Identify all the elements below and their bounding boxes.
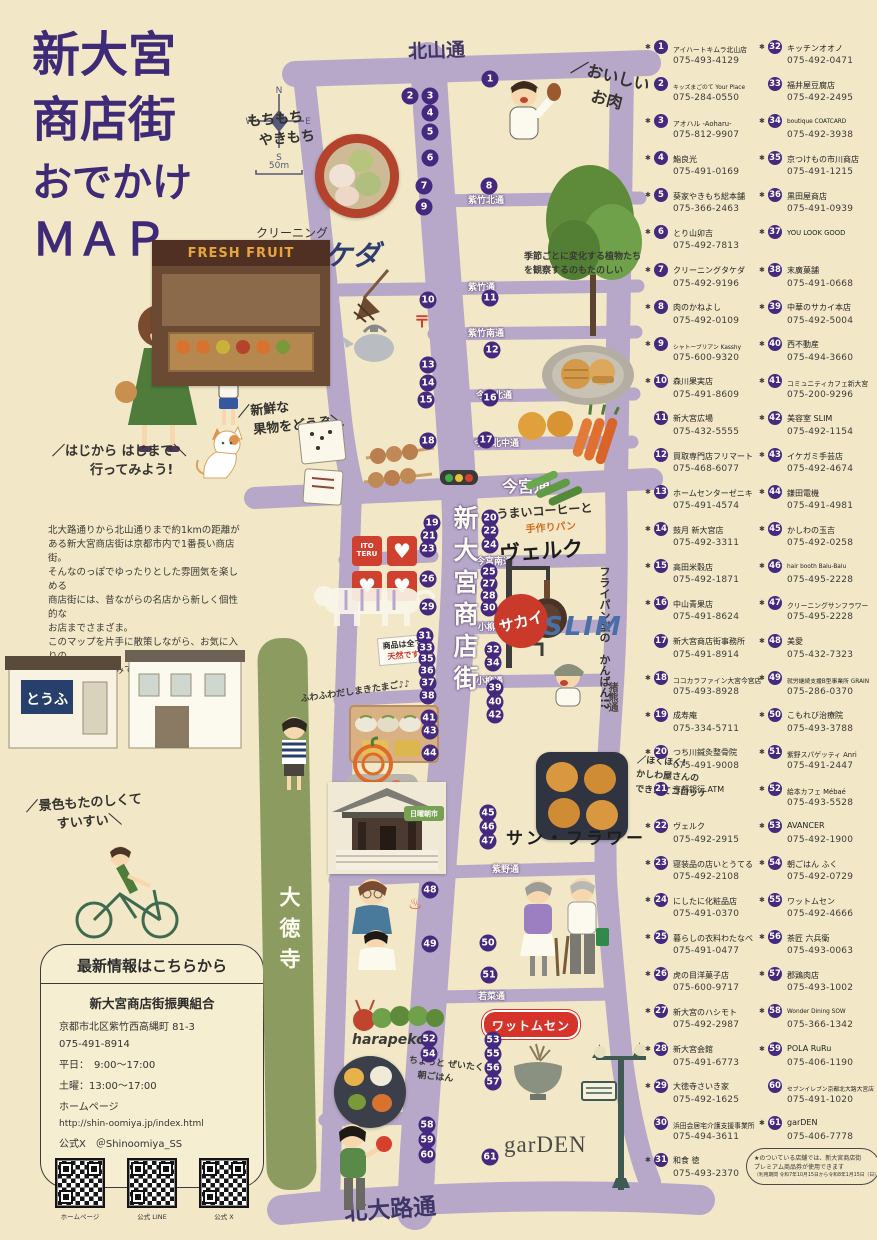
shop-phone: 075-492-4674 xyxy=(787,464,853,474)
map-marker-50: 50 xyxy=(480,935,497,952)
shop-number-badge: 44 xyxy=(768,485,782,499)
directory-entry: 33福井屋豆腐店075-492-2495 xyxy=(766,77,874,114)
premium-star-icon: ✱ xyxy=(759,1045,765,1053)
shop-number-badge: 21 xyxy=(654,782,668,796)
directory-entry: ✱9シャトーブリアン Kasshy075-600-9320 xyxy=(652,337,760,374)
map-marker-51: 51 xyxy=(481,967,498,984)
directory-entry: ✱1アイハートキムラ北山店075-493-4129 xyxy=(652,40,760,77)
tofu-shop-illustration: とうふ xyxy=(5,640,250,766)
map-marker-16: 16 xyxy=(482,390,499,407)
premium-star-icon: ✱ xyxy=(759,896,765,904)
map-marker-23: 23 xyxy=(420,541,437,558)
oniku-line2: お肉 xyxy=(589,86,625,112)
map-marker-1: 1 xyxy=(482,71,499,88)
premium-star-icon: ✱ xyxy=(645,711,651,719)
note-line3: （利用期間 令和7年10月15日から令和8年1月15日（日）） xyxy=(754,1172,872,1179)
shop-phone: 075-468-6077 xyxy=(673,464,739,474)
premium-star-icon: ✱ xyxy=(759,303,765,311)
premium-star-icon: ✱ xyxy=(645,859,651,867)
map-marker-60: 60 xyxy=(419,1147,436,1164)
premium-star-icon: ✱ xyxy=(645,599,651,607)
daitokuji-label: 大徳寺 xyxy=(274,886,304,979)
shop-name: 美容室 SLIM xyxy=(787,413,832,424)
directory-entry: ✱27新大宮のハシモト075-492-2987 xyxy=(652,1004,760,1041)
map-marker-7: 7 xyxy=(416,178,433,195)
shop-name: YOU LOOK GOOD xyxy=(787,229,845,237)
shop-number-badge: 16 xyxy=(654,596,668,610)
directory-entry: ✱15高田米穀店075-492-1871 xyxy=(652,559,760,596)
map-marker-8: 8 xyxy=(481,178,498,195)
shop-number-badge: 48 xyxy=(768,634,782,648)
sakai-text: サカイ xyxy=(497,605,546,636)
directory-entry: 17新大宮商店街事務所075-491-8914 xyxy=(652,634,760,671)
premium-star-icon: ✱ xyxy=(645,266,651,274)
directory-entry: 60セブンイレブン京都北大路大宮店075-491-1020 xyxy=(766,1079,874,1116)
premium-star-icon: ✱ xyxy=(645,303,651,311)
directory-entry: ✱32キッチンオオノ075-492-0471 xyxy=(766,40,874,77)
shop-phone: 075-491-0370 xyxy=(673,909,739,919)
shop-number-badge: 15 xyxy=(654,559,668,573)
shop-name: クリーニングサンフラワー xyxy=(787,600,868,610)
shop-name: 浜田会居宅介護支援事業所 xyxy=(673,1120,755,1130)
directory-entry: ✱47クリーニングサンフラワー075-495-2228 xyxy=(766,596,874,633)
shop-number-badge: 46 xyxy=(768,559,782,573)
mochi-callout: もちもち やきもち xyxy=(246,105,315,151)
shop-number-badge: 19 xyxy=(654,708,668,722)
shop-name: 西不動産 xyxy=(787,339,819,350)
directory-entry: ✱25暮らしの衣料わたなべ075-491-0477 xyxy=(652,930,760,967)
shop-number-badge: 34 xyxy=(768,114,782,128)
premium-star-icon: ✱ xyxy=(759,414,765,422)
title-line-3: おでかけ xyxy=(32,162,218,204)
svg-text:N: N xyxy=(276,86,283,96)
map-marker-3: 3 xyxy=(422,88,439,105)
directory-entry: ✱26虎の目洋菓子店075-600-9717 xyxy=(652,967,760,1004)
directory-entry: ✱19成寿庵075-334-5711 xyxy=(652,708,760,745)
directory-entry: ✱13ホームセンターゼニキ075-491-4574 xyxy=(652,485,760,522)
shop-name: 末廣菓舗 xyxy=(787,265,819,276)
shop-name: 絵本カフェ Mébaé xyxy=(787,786,846,796)
directory-entry: ✱54朝ごはん ふく075-492-0729 xyxy=(766,856,874,893)
shop-number-badge: 30 xyxy=(654,1116,668,1130)
map-marker-42: 42 xyxy=(487,707,504,724)
premium-star-icon: ✱ xyxy=(645,1007,651,1015)
shop-name: POLA RuRu xyxy=(787,1044,831,1053)
shop-number-badge: 27 xyxy=(654,1004,668,1018)
shop-name: 鎌田電機 xyxy=(787,488,819,499)
shop-phone: 075-284-0550 xyxy=(673,93,739,103)
premium-star-icon: ✱ xyxy=(759,785,765,793)
directory-entry: ✱56茶匠 六兵衛075-493-0063 xyxy=(766,930,874,967)
shop-phone: 075-492-1154 xyxy=(787,427,853,437)
map-marker-47: 47 xyxy=(480,833,497,850)
qr-line-icon xyxy=(127,1158,177,1208)
shop-number-badge: 5 xyxy=(654,188,668,202)
shop-name: 新大宮商店街事務所 xyxy=(673,636,745,647)
association-name: 新大宮商店街振興組合 xyxy=(41,993,263,1012)
shop-phone: 075-492-0109 xyxy=(673,316,739,326)
shop-number-badge: 18 xyxy=(654,671,668,685)
association-phone: 075-491-8914 xyxy=(59,1039,263,1050)
shop-name: AVANCER xyxy=(787,821,825,830)
premium-star-icon: ✱ xyxy=(759,191,765,199)
shop-number-badge: 47 xyxy=(768,596,782,610)
map-marker-44: 44 xyxy=(422,745,439,762)
premium-star-icon: ✱ xyxy=(759,228,765,236)
directory-entry: 30浜田会居宅介護支援事業所075-494-3611 xyxy=(652,1116,760,1153)
premium-star-icon: ✱ xyxy=(645,154,651,162)
qr-x-label: 公式 X xyxy=(199,1211,249,1221)
qr-homepage-icon xyxy=(55,1158,105,1208)
verk-callout: うまいコーヒーと 手作りパン ヴェルク xyxy=(496,499,596,569)
shop-phone: 075-492-1900 xyxy=(787,835,853,845)
directory-entry: ✱52絵本カフェ Mébaé075-493-5528 xyxy=(766,782,874,819)
shop-name: 中華のサカイ本店 xyxy=(787,302,851,313)
directory-entry: ✱18ココカラファイン大宮今宮店075-493-8928 xyxy=(652,671,760,708)
map-marker-29: 29 xyxy=(420,599,437,616)
broom-kettle-illustration xyxy=(336,268,412,368)
qr-homepage-label: ホームページ xyxy=(55,1211,105,1221)
temple-gate-photo xyxy=(328,782,446,874)
homepage-url: http://shin-oomiya.jp/index.html xyxy=(59,1119,263,1129)
premium-star-icon: ✱ xyxy=(759,1007,765,1015)
shop-name: 鼓月 新大宮店 xyxy=(673,525,724,536)
shop-number-badge: 35 xyxy=(768,151,782,165)
shop-phone: 075-492-2495 xyxy=(787,93,853,103)
directory-entry: ✱3アオハル -Aoharu-075-812-9907 xyxy=(652,114,760,151)
shop-number-badge: 38 xyxy=(768,263,782,277)
shop-phone: 075-491-1020 xyxy=(787,1095,853,1105)
slim-logo: SLIM xyxy=(544,612,623,642)
directory-entry: 2キッズまごのて Your Place075-284-0550 xyxy=(652,77,760,114)
shop-phone: 075-493-3788 xyxy=(787,724,853,734)
shop-number-badge: 3 xyxy=(654,114,668,128)
directory-entry: ✱22ヴェルク075-492-2915 xyxy=(652,819,760,856)
map-marker-34: 34 xyxy=(485,655,502,672)
shop-phone: 075-492-0471 xyxy=(787,56,853,66)
title-line-2: 商店街 xyxy=(32,95,218,146)
qr-line-label: 公式 LINE xyxy=(127,1211,177,1221)
shop-number-badge: 54 xyxy=(768,856,782,870)
shop-number-badge: 31 xyxy=(654,1153,668,1167)
shop-name: 郡鶏肉店 xyxy=(787,970,819,981)
shop-number-badge: 37 xyxy=(768,225,782,239)
premium-star-icon: ✱ xyxy=(645,896,651,904)
seasonal-note: 季節ごとに変化する植物たちを観察するのもたのしい xyxy=(524,250,642,279)
premium-star-icon: ✱ xyxy=(759,43,765,51)
shop-name: 朝ごはん ふく xyxy=(787,859,838,870)
shop-number-badge: 36 xyxy=(768,188,782,202)
map-marker-24: 24 xyxy=(482,537,499,554)
map-marker-38: 38 xyxy=(420,688,437,705)
shop-name: 新大宮会館 xyxy=(673,1044,713,1055)
premium-star-icon: ✱ xyxy=(759,377,765,385)
directory-entry: ✱55ワットムセン075-492-4666 xyxy=(766,893,874,930)
shop-phone: 075-286-0370 xyxy=(787,687,853,697)
cap-man-illustration xyxy=(542,650,598,712)
premium-star-icon: ✱ xyxy=(645,117,651,125)
shop-phone: 075-366-2463 xyxy=(673,204,739,214)
note-line1: ★のついている店舗では、新大宮商店街 xyxy=(754,1154,872,1163)
shop-phone: 075-600-9717 xyxy=(673,983,739,993)
shop-name: とり山卯吉 xyxy=(673,228,713,239)
title-line-1: 新大宮 xyxy=(32,30,218,81)
premium-star-icon: ✱ xyxy=(645,340,651,348)
shop-phone: 075-491-8914 xyxy=(673,650,739,660)
dashimaki-callout: ふわふわだしまきたまご♪♪ xyxy=(300,676,411,704)
directory-column-2: ✱32キッチンオオノ075-492-047133福井屋豆腐店075-492-24… xyxy=(766,40,874,1153)
shop-number-badge: 49 xyxy=(768,671,782,685)
directory-entry: ✱28新大宮会館075-491-6773 xyxy=(652,1042,760,1079)
directory-entry: ✱14鼓月 新大宮店075-492-3311 xyxy=(652,522,760,559)
shop-name: hair booth Balu-Balu xyxy=(787,564,846,570)
premium-star-icon: ✱ xyxy=(645,1045,651,1053)
directory-entry: ✱48美愛075-432-7323 xyxy=(766,634,874,671)
tree-photo xyxy=(540,150,648,344)
map-marker-11: 11 xyxy=(482,290,499,307)
traffic-light-icon xyxy=(440,470,478,485)
directory-entry: ✱43イケガミ手芸店075-492-4674 xyxy=(766,448,874,485)
shop-phone: 075-491-6773 xyxy=(673,1058,739,1068)
directory-entry: ✱45かしわの玉吉075-492-0258 xyxy=(766,522,874,559)
poster-title: 新大宮 商店街 おでかけ ＭＡＰ xyxy=(32,30,218,264)
shop-name: イケガミ手芸店 xyxy=(787,451,843,462)
premium-star-icon: ✱ xyxy=(759,154,765,162)
shop-number-badge: 61 xyxy=(768,1116,782,1130)
shop-name: シャトーブリアン Kasshy xyxy=(673,342,741,351)
directory-entry: ✱36黒田屋商店075-491-0939 xyxy=(766,188,874,225)
shop-number-badge: 4 xyxy=(654,151,668,165)
shop-number-badge: 1 xyxy=(654,40,668,54)
shop-name: 暮らしの衣料わたなべ xyxy=(673,933,753,944)
shop-phone: 075-334-5711 xyxy=(673,724,739,734)
premium-star-icon: ✱ xyxy=(759,599,765,607)
map-marker-5: 5 xyxy=(422,124,439,141)
shop-phone: 075-493-0063 xyxy=(787,946,853,956)
weekday-hours: 平日： 9:00～17:00 xyxy=(59,1056,263,1071)
harapeko-logo: harapeko xyxy=(352,1032,426,1048)
shop-phone: 075-492-9196 xyxy=(673,279,739,289)
shop-phone: 075-491-8609 xyxy=(673,390,739,400)
shop-number-badge: 28 xyxy=(654,1042,668,1056)
premium-star-icon: ✱ xyxy=(645,1156,651,1164)
directory-entry: ✱7クリーニングタケダ075-492-9196 xyxy=(652,263,760,300)
shop-number-badge: 11 xyxy=(654,411,668,425)
directory-entry: ✱35京つけもの市川商店075-491-1215 xyxy=(766,151,874,188)
wattomsen-text: ワットムセン xyxy=(492,1019,570,1033)
map-marker-49: 49 xyxy=(422,936,439,953)
premium-star-icon: ✱ xyxy=(645,488,651,496)
shop-name: クリーニングタケダ xyxy=(673,265,745,276)
shop-phone: 075-492-2987 xyxy=(673,1020,739,1030)
shop-name: 成寿庵 xyxy=(673,710,697,721)
shop-name: 新大宮のハシモト xyxy=(673,1007,737,1018)
premium-star-icon: ✱ xyxy=(759,859,765,867)
shop-name: コミュニティカフェ新大宮 xyxy=(787,378,868,388)
shop-name: ワットムセン xyxy=(787,896,835,907)
shop-name: にしたに化粧品店 xyxy=(673,896,737,907)
shop-name: アイハートキムラ北山店 xyxy=(673,44,747,54)
shop-number-badge: 6 xyxy=(654,225,668,239)
saturday-hours: 土曜：13:00～17:00 xyxy=(59,1077,263,1092)
shop-number-badge: 58 xyxy=(768,1004,782,1018)
premium-star-icon: ✱ xyxy=(645,562,651,570)
shop-name: キッズまごのて Your Place xyxy=(673,82,745,91)
shop-phone: 075-406-1190 xyxy=(787,1058,853,1068)
note-line2: プレミアム商品券が使用できます xyxy=(754,1163,872,1172)
street-label-kitayama: 北山通 xyxy=(408,35,466,64)
shop-name: ホームセンターゼニキ xyxy=(673,488,753,499)
map-marker-6: 6 xyxy=(422,150,439,167)
qr-code-row: ホームページ 公式 LINE 公式 X xyxy=(41,1156,263,1221)
directory-entry: ✱23寝装品の店いとうてる075-492-2108 xyxy=(652,856,760,893)
premium-star-icon: ✱ xyxy=(759,488,765,496)
shop-name: 京都銀行 ATM xyxy=(673,784,724,795)
shop-phone: 075-492-1871 xyxy=(673,575,739,585)
shop-name: アオハル -Aoharu- xyxy=(673,118,732,128)
matcha-bowl-illustration xyxy=(506,1042,570,1108)
shop-phone: 075-492-0729 xyxy=(787,872,853,882)
directory-entry: ✱38末廣菓舗075-491-0668 xyxy=(766,263,874,300)
shop-phone: 075-366-1342 xyxy=(787,1020,853,1030)
map-marker-54: 54 xyxy=(421,1046,438,1063)
shop-phone: 075-492-7813 xyxy=(673,241,739,251)
premium-coupon-note: ★のついている店舗では、新大宮商店街 プレミアム商品券が使用できます （利用期間… xyxy=(746,1148,877,1185)
shop-name: 葵家やきもち総本舗 xyxy=(673,191,745,202)
map-marker-17: 17 xyxy=(478,432,495,449)
premium-star-icon: ✱ xyxy=(645,377,651,385)
street-label-murasakino: 紫野通 xyxy=(492,862,519,875)
shop-name: 紫野スパゲッティ Anri xyxy=(787,749,857,759)
shop-phone: 075-493-2370 xyxy=(673,1169,739,1179)
directory-entry: ✱58Wonder Dining SOW075-366-1342 xyxy=(766,1004,874,1041)
mochi-line1: もちもち xyxy=(247,109,304,130)
shop-name: 福井屋豆腐店 xyxy=(787,80,835,91)
directory-entry: 11新大宮広場075-432-5555 xyxy=(652,411,760,448)
shop-number-badge: 22 xyxy=(654,819,668,833)
shop-name: 買取専門店フリマート xyxy=(673,451,753,462)
shop-number-badge: 55 xyxy=(768,893,782,907)
street-label-shichiku-kita: 紫竹北通 xyxy=(468,193,504,206)
shop-name: 虎の目洋菓子店 xyxy=(673,970,729,981)
directory-entry: ✱59POLA RuRu075-406-1190 xyxy=(766,1042,874,1079)
shop-number-badge: 32 xyxy=(768,40,782,54)
map-marker-9: 9 xyxy=(416,199,433,216)
street-label-shichiku-minami: 紫竹南通 xyxy=(468,326,504,339)
shop-name: 黒田屋商店 xyxy=(787,191,827,202)
shop-phone: 075-492-3311 xyxy=(673,538,739,548)
cyclist-illustration xyxy=(62,830,192,949)
directory-entry: ✱51紫野スパゲッティ Anri075-491-2447 xyxy=(766,745,874,782)
official-x-handle: 公式X ＠Shinoomiya_SS xyxy=(59,1135,263,1150)
shop-name: 茶匠 六兵衛 xyxy=(787,933,830,944)
shop-phone: 075-493-8928 xyxy=(673,687,739,697)
map-marker-14: 14 xyxy=(420,375,437,392)
shop-number-badge: 57 xyxy=(768,967,782,981)
shop-number-badge: 24 xyxy=(654,893,668,907)
shop-number-badge: 51 xyxy=(768,745,782,759)
shop-name: 就労継続支援B型事業所 GRAIN xyxy=(787,676,869,685)
shop-number-badge: 2 xyxy=(654,77,668,91)
shop-number-badge: 17 xyxy=(654,634,668,648)
shop-number-badge: 8 xyxy=(654,300,668,314)
frypan-line2: かんばん!? xyxy=(598,654,611,709)
shop-number-badge: 43 xyxy=(768,448,782,462)
street-label-wakana: 若菜通 xyxy=(478,989,505,1002)
ito-teru-logo: ITO TERU xyxy=(352,543,382,558)
directory-entry: ✱50こもれび治療院075-493-3788 xyxy=(766,708,874,745)
shop-name: 肉のかねよし xyxy=(673,302,721,313)
shop-number-badge: 53 xyxy=(768,819,782,833)
scenery-callout: ／景色もたのしくて すいすい＼ xyxy=(25,788,144,834)
shop-phone: 075-432-5555 xyxy=(673,427,739,437)
premium-star-icon: ✱ xyxy=(645,748,651,756)
shop-name: Wonder Dining SOW xyxy=(787,1009,846,1015)
shop-name: 美愛 xyxy=(787,636,803,647)
premium-star-icon: ✱ xyxy=(759,451,765,459)
shop-phone: 075-491-8624 xyxy=(673,612,739,622)
shop-phone: 075-494-3611 xyxy=(673,1132,739,1142)
shop-number-badge: 26 xyxy=(654,967,668,981)
qr-x-icon xyxy=(199,1158,249,1208)
shop-phone: 075-495-2228 xyxy=(787,612,853,622)
premium-star-icon: ✱ xyxy=(645,228,651,236)
directory-entry: ✱29大徳寺さいき家075-492-1625 xyxy=(652,1079,760,1116)
shop-phone: 075-492-1625 xyxy=(673,1095,739,1105)
shop-phone: 075-432-7323 xyxy=(787,650,853,660)
directory-entry: ✱39中華のサカイ本店075-492-5004 xyxy=(766,300,874,337)
premium-star-icon: ✱ xyxy=(645,674,651,682)
premium-star-icon: ✱ xyxy=(645,1082,651,1090)
shop-phone: 075-492-5004 xyxy=(787,316,853,326)
shop-number-badge: 45 xyxy=(768,522,782,536)
shop-number-badge: 9 xyxy=(654,337,668,351)
shop-number-badge: 60 xyxy=(768,1079,782,1093)
map-marker-10: 10 xyxy=(420,292,437,309)
post-office-mark: 〒 xyxy=(414,308,430,332)
directory-entry: ✱53AVANCER075-492-1900 xyxy=(766,819,874,856)
shop-phone: 075-200-9296 xyxy=(787,390,853,400)
scale-label: 50m xyxy=(269,161,289,171)
shop-phone: 075-493-1002 xyxy=(787,983,853,993)
shop-name: 高田米穀店 xyxy=(673,562,713,573)
directory-entry: ✱5葵家やきもち総本舗075-366-2463 xyxy=(652,188,760,225)
shop-name: つち川鍼灸整骨院 xyxy=(673,747,737,758)
map-marker-13: 13 xyxy=(420,357,437,374)
directory-entry: ✱6とり山卯吉075-492-7813 xyxy=(652,225,760,262)
shop-number-badge: 10 xyxy=(654,374,668,388)
shop-phone: 075-491-0668 xyxy=(787,279,853,289)
premium-star-icon: ✱ xyxy=(645,525,651,533)
homepage-label: ホームページ xyxy=(59,1098,263,1113)
shop-phone: 075-492-2915 xyxy=(673,835,739,845)
premium-star-icon: ✱ xyxy=(759,711,765,719)
shop-phone: 075-812-9907 xyxy=(673,130,739,140)
premium-star-icon: ✱ xyxy=(645,43,651,51)
directory-entry: ✱10森川果実店075-491-8609 xyxy=(652,374,760,411)
premium-star-icon: ✱ xyxy=(759,822,765,830)
garden-logo: garDEN xyxy=(504,1132,587,1158)
map-marker-61: 61 xyxy=(482,1149,499,1166)
map-marker-12: 12 xyxy=(484,342,501,359)
premium-star-icon: ✱ xyxy=(759,562,765,570)
shop-number-badge: 23 xyxy=(654,856,668,870)
map-marker-2: 2 xyxy=(402,88,419,105)
premium-star-icon: ✱ xyxy=(759,933,765,941)
shop-name: こもれび治療院 xyxy=(787,710,843,721)
walking-girl-illustration xyxy=(262,712,328,798)
map-marker-26: 26 xyxy=(420,571,437,588)
